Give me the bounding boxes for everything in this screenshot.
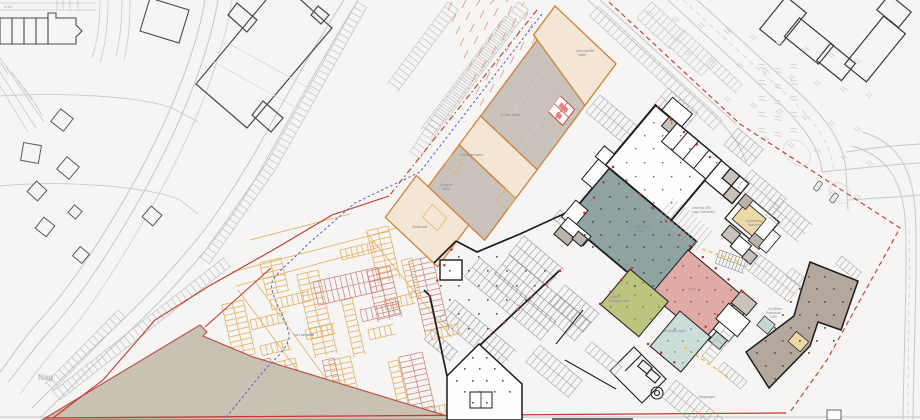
svg-text:Textilgeschaeft: Textilgeschaeft — [608, 299, 629, 303]
svg-text:Getraenkemarkt: Getraenkemarkt — [460, 153, 483, 157]
svg-text:markt: markt — [442, 187, 450, 191]
svg-text:1-Cafe: 1-Cafe — [634, 229, 644, 233]
svg-text:1:19: 1:19 — [4, 4, 13, 9]
svg-text:Tr.-Max-Markt: Tr.-Max-Markt — [500, 113, 520, 117]
svg-text:Baeckerei: Baeckerei — [748, 223, 762, 227]
svg-text:Lage Getraenke: Lage Getraenke — [692, 210, 715, 214]
svg-text:1150: 1150 — [770, 315, 777, 319]
svg-text:Getraenke markt: Getraenke markt — [662, 329, 686, 333]
svg-text:Markt: Markt — [688, 287, 696, 291]
svg-text:Textilmarkt: Textilmarkt — [412, 225, 427, 229]
svg-text:zur Haltestelle: zur Haltestelle — [294, 333, 314, 337]
svg-text:markt: markt — [578, 53, 586, 57]
svg-text:Nag: Nag — [38, 373, 53, 382]
svg-text:Tiefgaragen: Tiefgaragen — [698, 395, 715, 399]
